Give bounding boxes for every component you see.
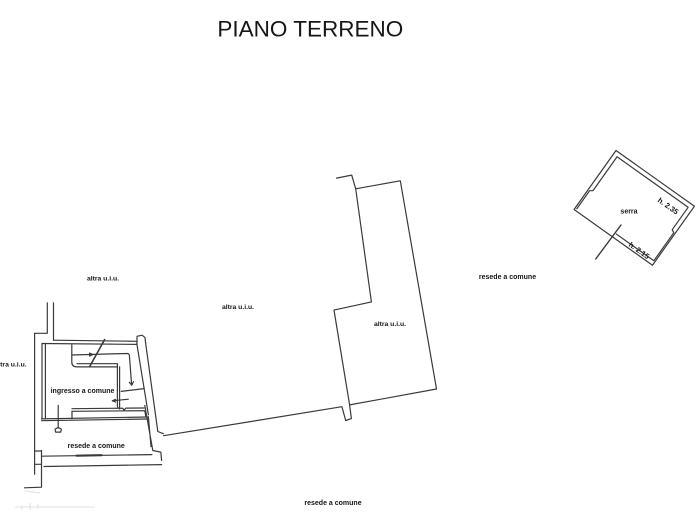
svg-text:resede a comune: resede a comune bbox=[479, 274, 536, 281]
svg-text:h. 2.15: h. 2.15 bbox=[627, 240, 651, 261]
svg-text:resede a comune: resede a comune bbox=[68, 443, 125, 450]
svg-text:ingresso a comune: ingresso a comune bbox=[51, 388, 115, 395]
svg-text:altra u.i.u.: altra u.i.u. bbox=[222, 304, 254, 311]
svg-text:altra u.i.u.: altra u.i.u. bbox=[87, 276, 119, 283]
svg-text:altra u.i.u.: altra u.i.u. bbox=[0, 362, 27, 369]
svg-text:PIANO TERRENO: PIANO TERRENO bbox=[217, 16, 403, 41]
svg-text:serra: serra bbox=[620, 209, 637, 216]
svg-text:resede a comune: resede a comune bbox=[304, 500, 361, 507]
svg-text:altra u.i.u.: altra u.i.u. bbox=[374, 321, 406, 328]
